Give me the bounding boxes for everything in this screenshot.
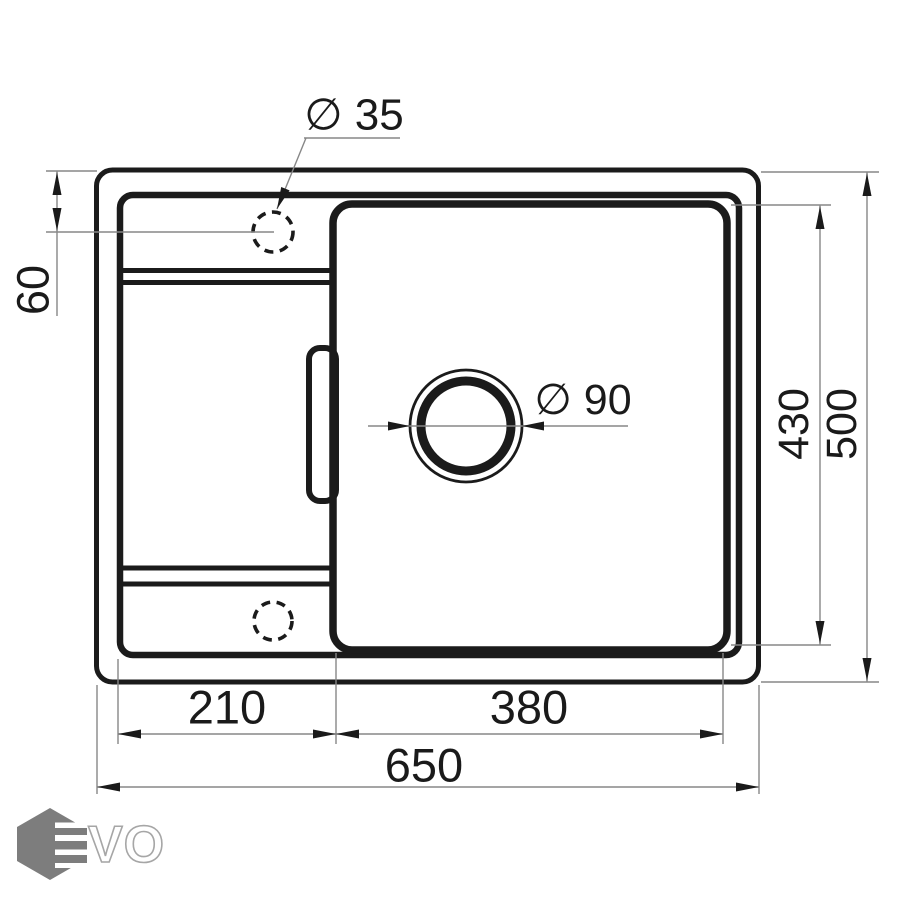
- evo-logo-vo-text: VO: [88, 816, 165, 874]
- evo-logo-e-arm-middle: [55, 841, 87, 850]
- evo-logo-e-arm-top: [55, 828, 87, 835]
- dim-650-arrow-right: [736, 783, 759, 792]
- dim-210-arrow-right: [313, 730, 336, 739]
- dim-d35-label: ∅ 35: [304, 91, 404, 140]
- dim-d90-label: ∅ 90: [534, 376, 631, 424]
- dim-210-arrow-left: [118, 730, 141, 739]
- dim-60-label: 60: [8, 265, 59, 315]
- dim-430: 430: [731, 205, 831, 645]
- dim-500-arrow-up: [863, 173, 872, 196]
- bottom-hole-dashed-circle: [254, 602, 292, 640]
- dim-650-arrow-left: [97, 783, 120, 792]
- sink-dimension-drawing: 60 ∅ 35 ∅ 90 430 500: [0, 0, 900, 900]
- dims-bottom: 210 380 650: [97, 653, 759, 794]
- dim-500-arrow-down: [863, 658, 872, 681]
- dim-430-label: 430: [770, 388, 818, 460]
- dim-60-arrow-down: [53, 208, 62, 231]
- dim-380-arrow-right: [700, 730, 723, 739]
- dim-380-label: 380: [490, 681, 568, 734]
- evo-logo: VO: [17, 808, 165, 880]
- dim-380-arrow-left: [336, 730, 359, 739]
- dim-d90-arrow-left: [388, 422, 410, 431]
- dim-210-label: 210: [188, 681, 266, 734]
- dim-60-arrow-up: [53, 172, 62, 195]
- dim-d35: ∅ 35: [277, 91, 404, 210]
- evo-logo-e-arm-bottom: [55, 855, 87, 863]
- dim-430-arrow-down: [816, 621, 825, 644]
- dim-430-arrow-up: [816, 206, 825, 229]
- dim-650-label: 650: [385, 739, 463, 792]
- dim-500-label: 500: [818, 388, 866, 460]
